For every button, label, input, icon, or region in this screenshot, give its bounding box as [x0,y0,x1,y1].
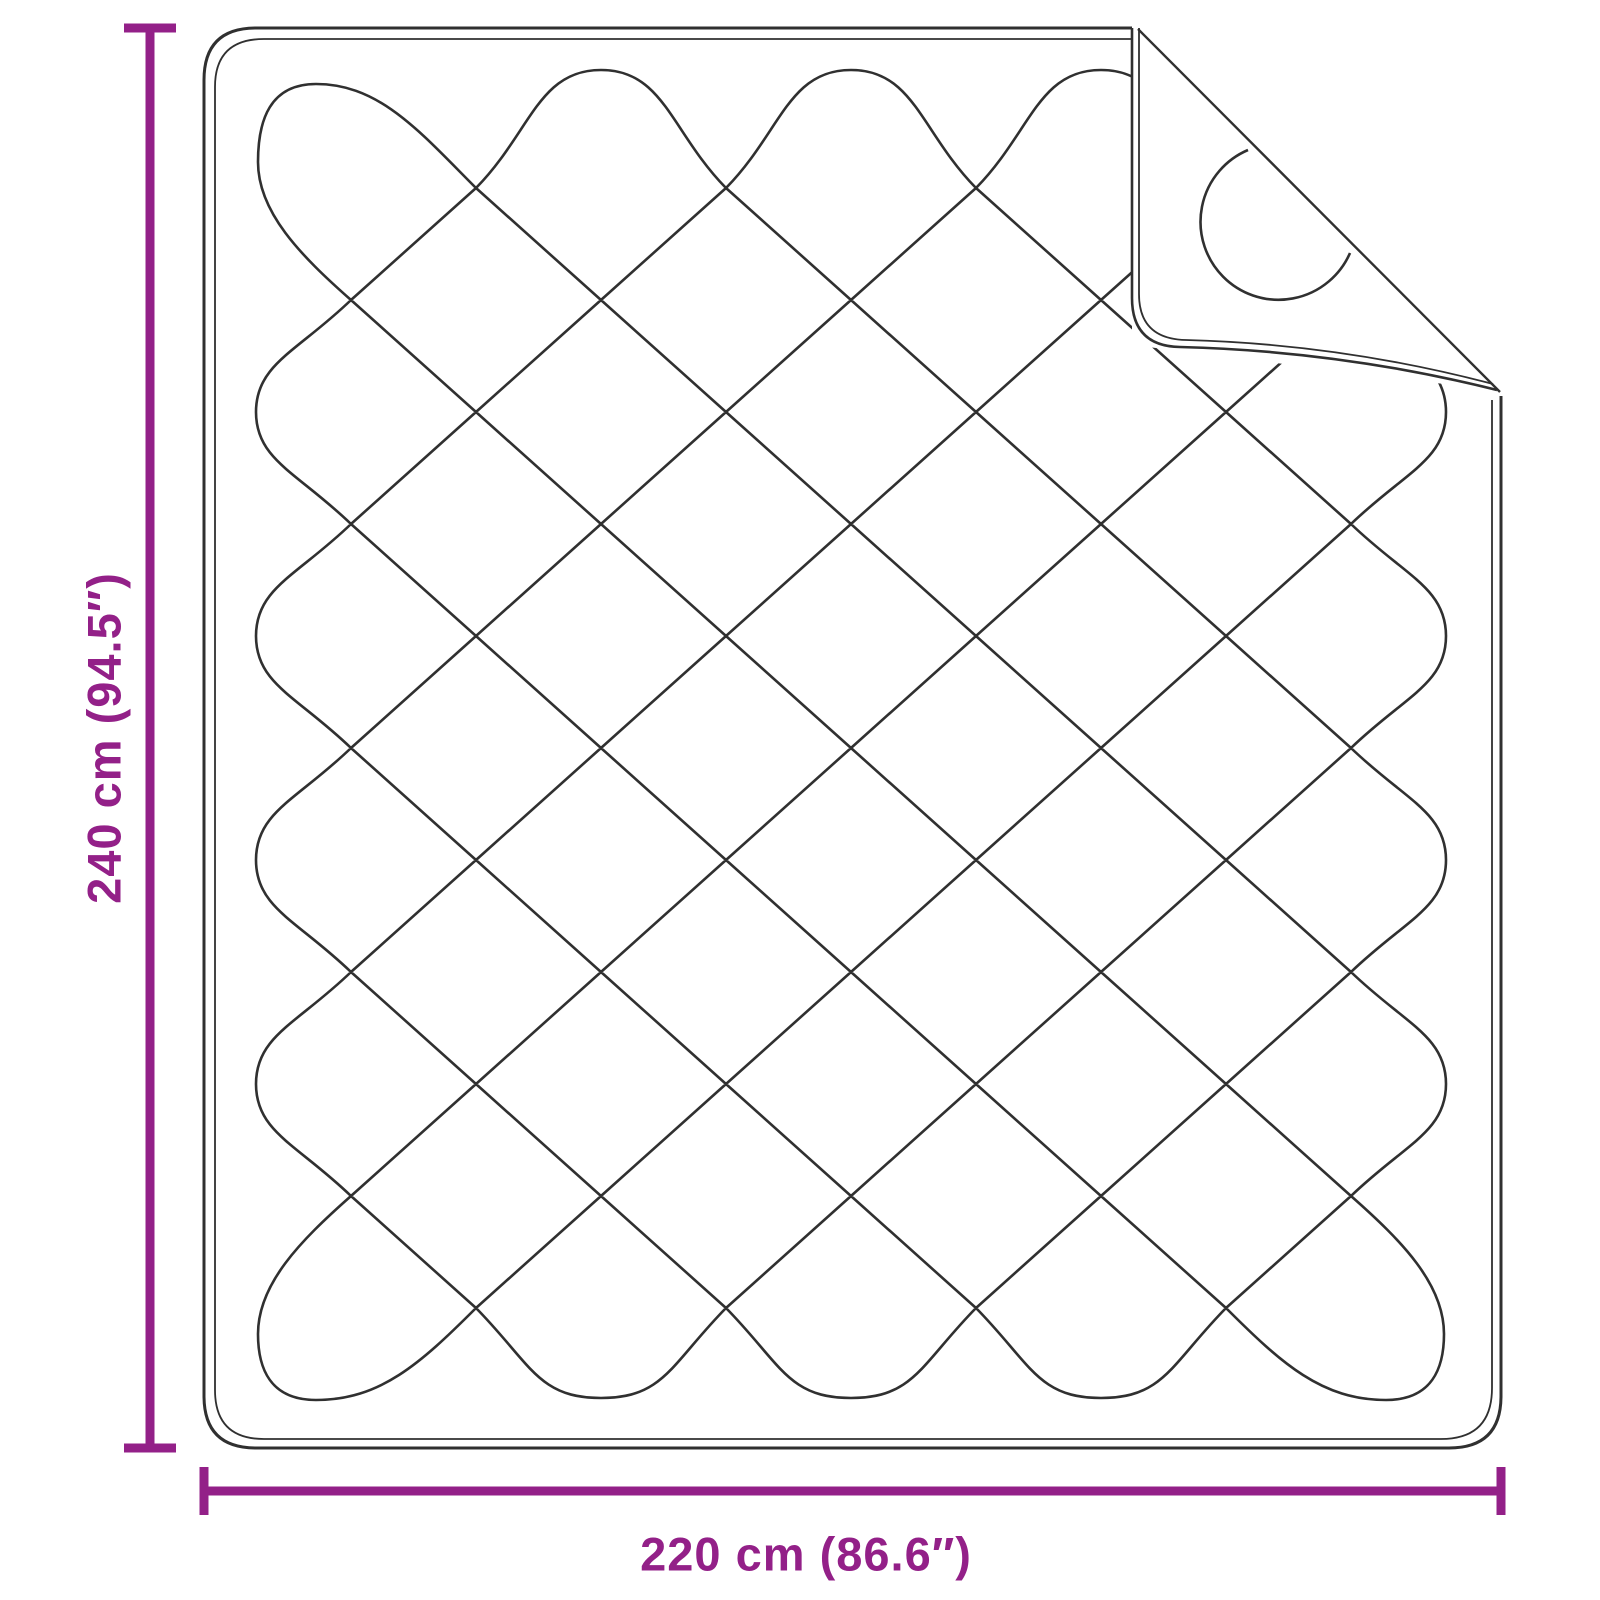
height-dimension-label: 240 cm (94.5″) [77,572,132,904]
dimension-diagram: 240 cm (94.5″) 220 cm (86.6″) [0,0,1600,1600]
blanket-illustration [0,0,1600,1600]
width-dimension-label: 220 cm (86.6″) [640,1527,972,1582]
height-dimension-line [124,28,176,1448]
width-dimension-line [204,1467,1501,1515]
